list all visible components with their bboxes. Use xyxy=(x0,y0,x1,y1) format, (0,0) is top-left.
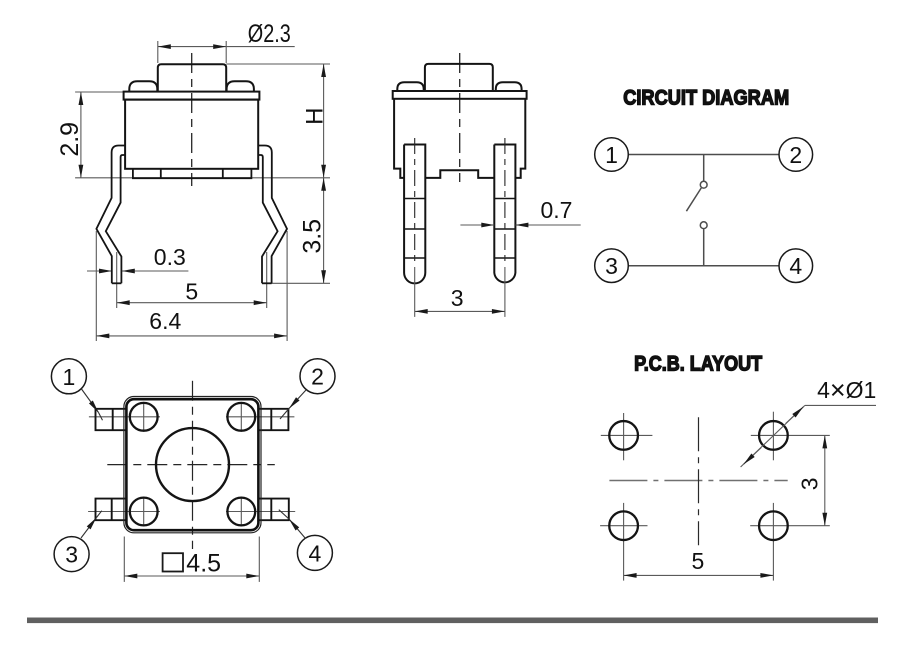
svg-text:CIRCUIT DIAGRAM: CIRCUIT DIAGRAM xyxy=(623,87,789,110)
svg-text:4: 4 xyxy=(789,253,802,279)
svg-text:1: 1 xyxy=(63,364,76,390)
svg-text:2.9: 2.9 xyxy=(56,122,84,157)
svg-text:H: H xyxy=(302,108,329,125)
svg-text:3: 3 xyxy=(605,253,618,279)
svg-text:1: 1 xyxy=(605,142,618,168)
svg-text:0.7: 0.7 xyxy=(541,197,573,223)
svg-text:P.C.B. LAYOUT: P.C.B. LAYOUT xyxy=(634,352,762,375)
svg-text:4×Ø1: 4×Ø1 xyxy=(817,375,876,405)
svg-text:6.4: 6.4 xyxy=(149,308,181,334)
svg-text:3.5: 3.5 xyxy=(299,219,327,254)
svg-text:5: 5 xyxy=(692,548,705,574)
svg-text:2: 2 xyxy=(311,364,324,390)
svg-text:4: 4 xyxy=(309,540,322,566)
svg-text:3: 3 xyxy=(797,478,823,491)
svg-text:3: 3 xyxy=(451,285,464,311)
svg-text:2: 2 xyxy=(789,142,802,168)
svg-text:5: 5 xyxy=(185,278,198,304)
svg-text:4.5: 4.5 xyxy=(186,550,221,578)
svg-text:Ø2.3: Ø2.3 xyxy=(248,20,291,48)
svg-text:0.3: 0.3 xyxy=(154,244,186,270)
svg-text:3: 3 xyxy=(65,542,78,568)
